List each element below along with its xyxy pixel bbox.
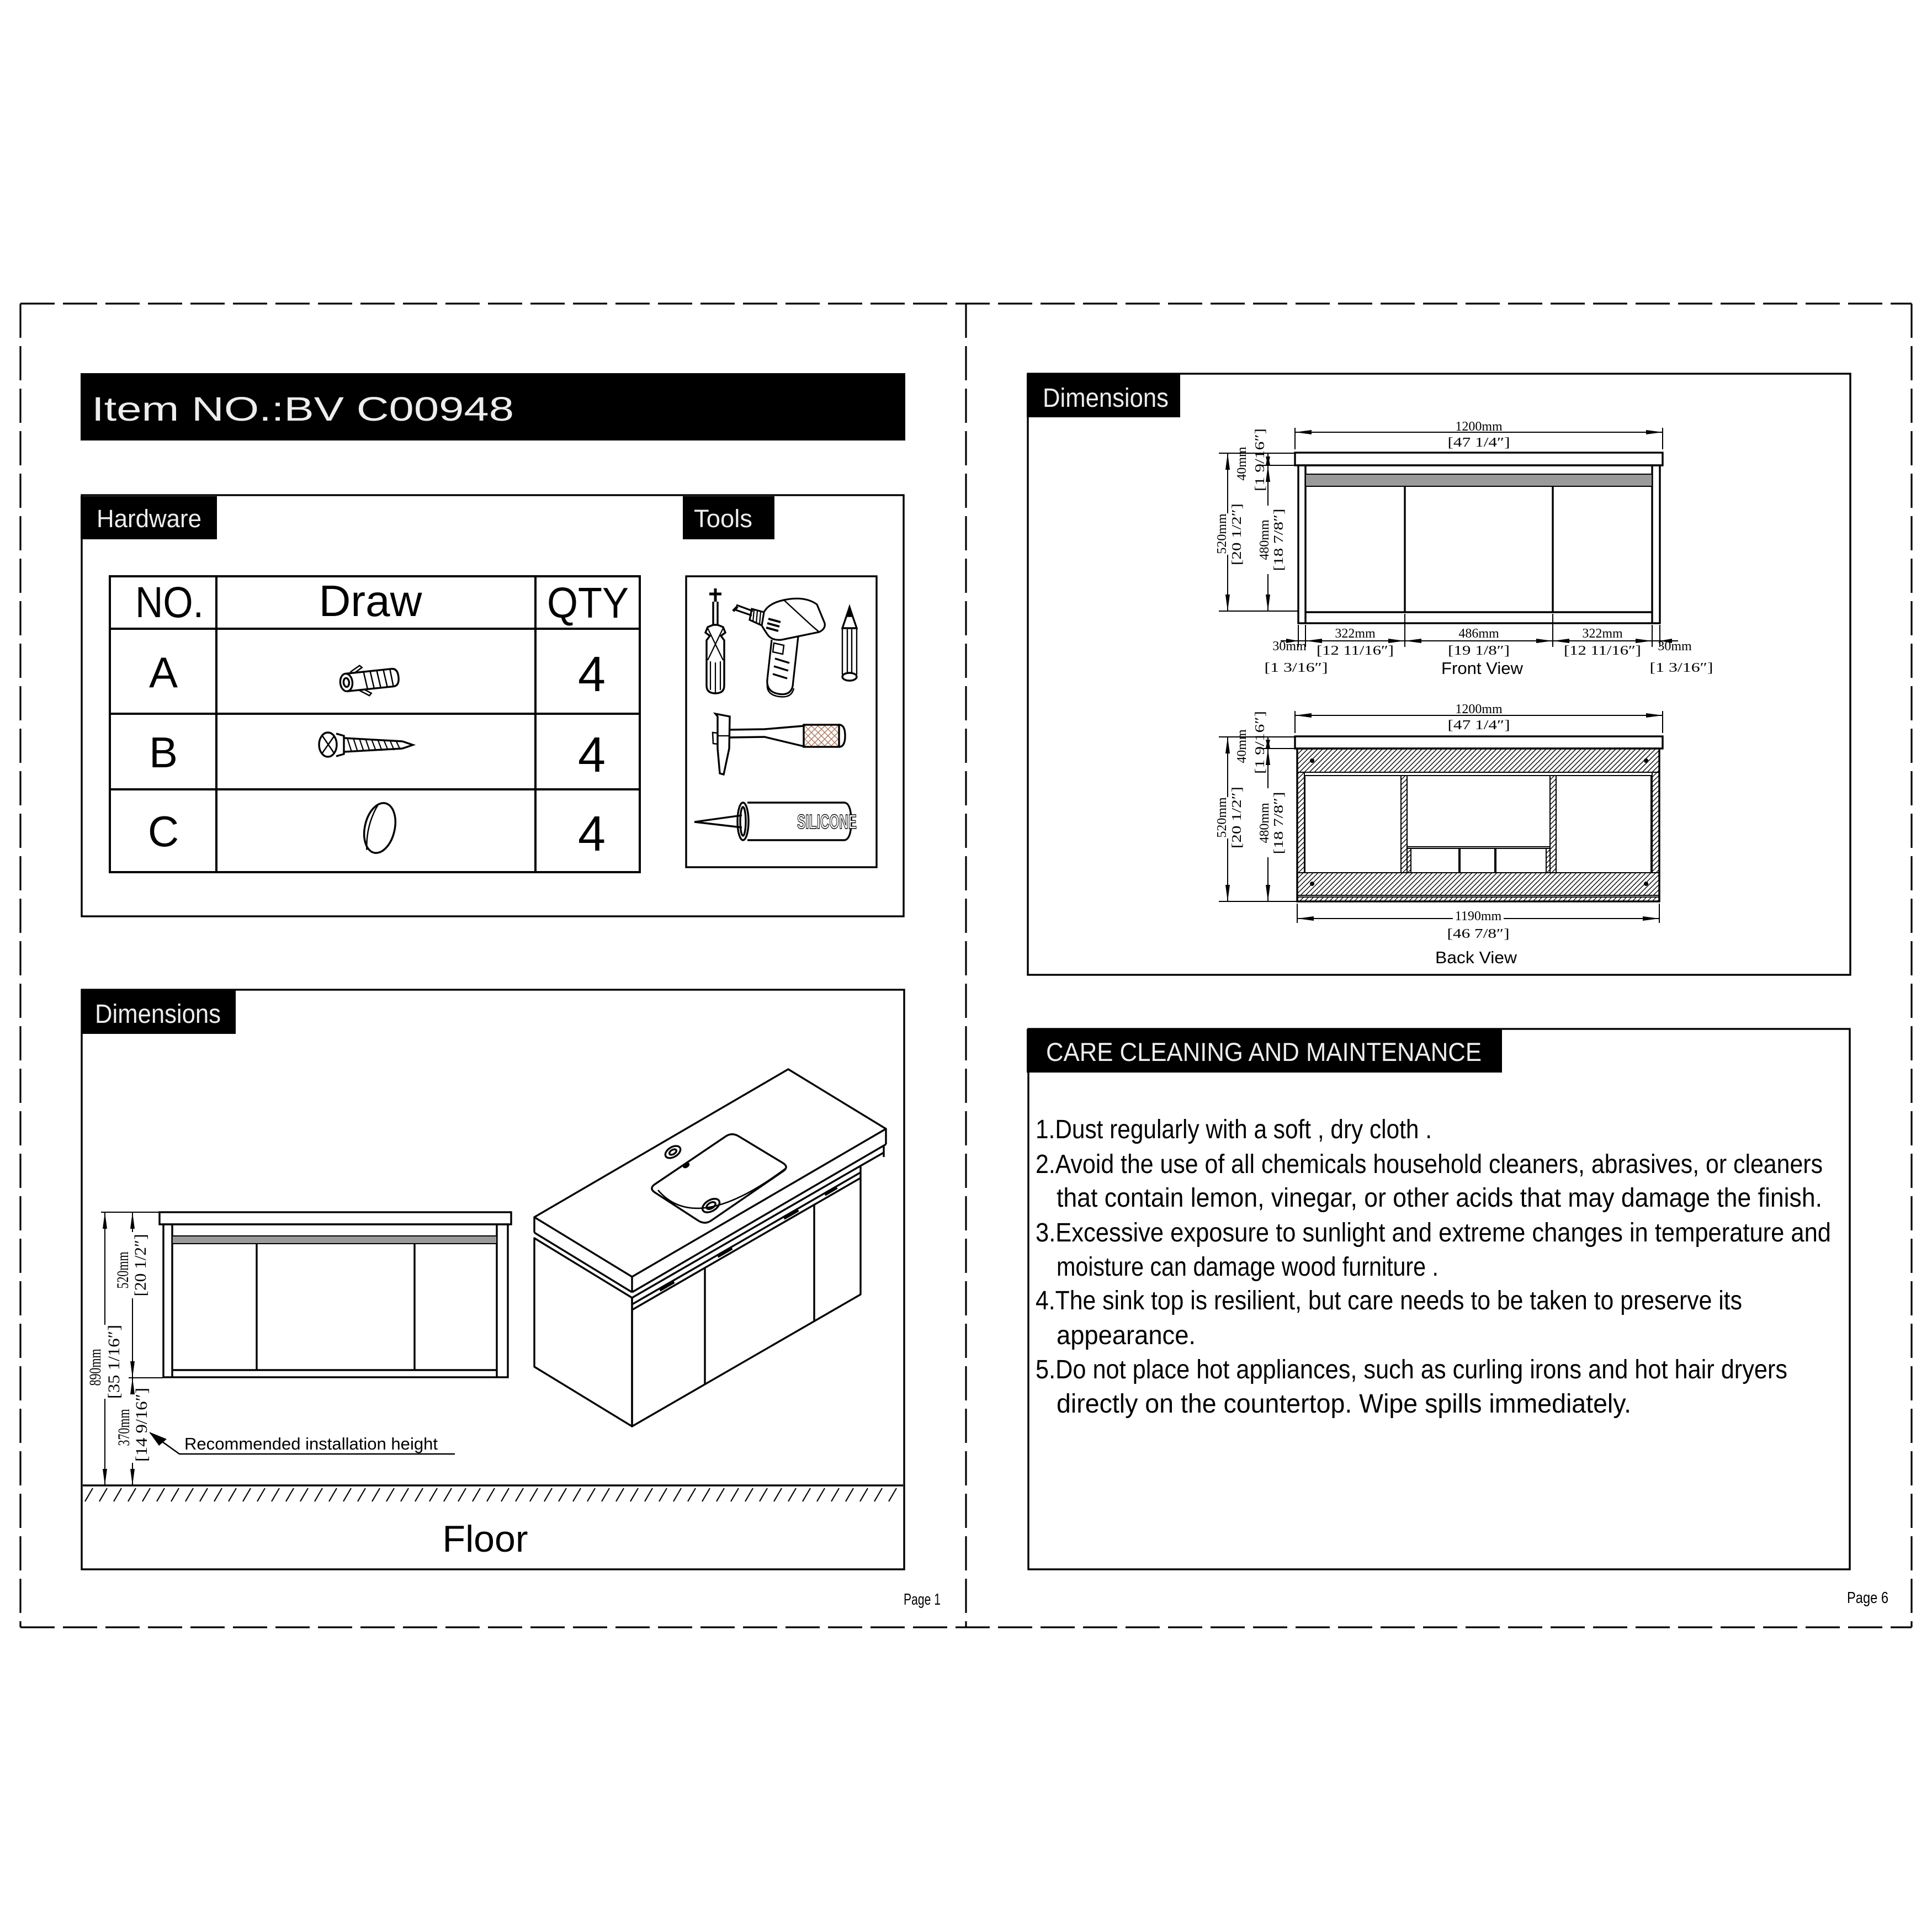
svg-text:4: 4: [578, 728, 606, 783]
svg-text:30mm: 30mm: [1658, 639, 1692, 654]
svg-text:NO.: NO.: [135, 577, 204, 627]
svg-text:Page 1: Page 1: [904, 1591, 941, 1609]
svg-text:322mm: 322mm: [1335, 627, 1376, 641]
svg-text:B: B: [149, 728, 178, 777]
svg-text:1190mm: 1190mm: [1455, 909, 1502, 923]
svg-text:[1 9/16″]: [1 9/16″]: [1253, 428, 1267, 491]
svg-text:Floor: Floor: [443, 1518, 528, 1560]
svg-text:5.Do not place hot appliances,: 5.Do not place hot appliances, such as c…: [1036, 1355, 1787, 1384]
svg-text:Draw: Draw: [319, 576, 422, 625]
svg-text:moisture can damage wood furni: moisture can damage wood furniture .: [1057, 1252, 1439, 1282]
svg-text:[20 1/2″]: [20 1/2″]: [1230, 787, 1244, 848]
svg-text:[47 1/4″]: [47 1/4″]: [1448, 436, 1510, 450]
svg-text:40mm: 40mm: [1235, 729, 1249, 763]
svg-text:520mm: 520mm: [1215, 797, 1229, 838]
svg-text:[1 3/16″]: [1 3/16″]: [1650, 661, 1713, 675]
svg-text:that contain lemon, vinegar, o: that contain lemon, vinegar, or other ac…: [1057, 1183, 1822, 1213]
svg-text:Front View: Front View: [1441, 659, 1524, 678]
svg-text:[12 11/16″]: [12 11/16″]: [1564, 644, 1641, 658]
svg-text:Recommended installation heigh: Recommended installation height: [184, 1434, 438, 1453]
svg-text:Page 6: Page 6: [1847, 1589, 1888, 1607]
svg-text:[35 1/16″]: [35 1/16″]: [105, 1325, 123, 1399]
svg-text:[14 9/16″]: [14 9/16″]: [132, 1388, 151, 1462]
svg-text:1200mm: 1200mm: [1455, 420, 1503, 434]
svg-text:Dimensions: Dimensions: [95, 1000, 221, 1029]
svg-text:Dimensions: Dimensions: [1043, 384, 1169, 413]
svg-text:[20 1/2″]: [20 1/2″]: [1230, 503, 1244, 565]
svg-text:appearance.: appearance.: [1057, 1321, 1196, 1350]
svg-text:[47 1/4″]: [47 1/4″]: [1448, 718, 1510, 733]
svg-text:Tools: Tools: [694, 505, 752, 533]
svg-text:QTY: QTY: [547, 578, 629, 627]
svg-text:[19 1/8″]: [19 1/8″]: [1448, 644, 1510, 658]
svg-text:520mm: 520mm: [114, 1252, 132, 1289]
svg-text:directly on the countertop. Wi: directly on the countertop. Wipe spills …: [1057, 1389, 1631, 1419]
svg-text:CARE CLEANING AND MAINTENANCE: CARE CLEANING AND MAINTENANCE: [1046, 1037, 1482, 1066]
svg-text:SILICONE: SILICONE: [797, 810, 857, 833]
svg-text:Back View: Back View: [1435, 948, 1517, 967]
svg-text:[18 7/8″]: [18 7/8″]: [1272, 509, 1286, 571]
svg-text:30mm: 30mm: [1272, 639, 1307, 654]
svg-text:[1 9/16″]: [1 9/16″]: [1253, 711, 1267, 774]
svg-text:[1 3/16″]: [1 3/16″]: [1265, 661, 1328, 675]
svg-text:40mm: 40mm: [1235, 447, 1249, 481]
svg-text:C: C: [148, 807, 179, 856]
svg-text:1.Dust regularly with a soft ,: 1.Dust regularly with a soft , dry cloth…: [1036, 1115, 1432, 1144]
svg-text:4: 4: [578, 647, 606, 702]
svg-text:[18 7/8″]: [18 7/8″]: [1272, 792, 1286, 854]
svg-text:322mm: 322mm: [1582, 627, 1623, 641]
svg-text:4.The sink top is resilient, b: 4.The sink top is resilient, but care ne…: [1036, 1286, 1742, 1315]
svg-text:[46 7/8″]: [46 7/8″]: [1447, 927, 1510, 941]
svg-text:Item NO.:BV C00948: Item NO.:BV C00948: [92, 390, 514, 428]
svg-text:890mm: 890mm: [86, 1349, 104, 1386]
svg-text:480mm: 480mm: [1257, 803, 1272, 843]
svg-text:370mm: 370mm: [115, 1409, 133, 1446]
svg-text:480mm: 480mm: [1257, 519, 1272, 560]
svg-text:1200mm: 1200mm: [1455, 702, 1503, 716]
svg-text:Hardware: Hardware: [97, 505, 201, 533]
svg-text:[20 1/2″]: [20 1/2″]: [131, 1234, 150, 1297]
svg-text:486mm: 486mm: [1458, 627, 1499, 641]
svg-text:A: A: [149, 648, 178, 697]
svg-text:[12 11/16″]: [12 11/16″]: [1317, 644, 1394, 658]
svg-text:4: 4: [578, 806, 606, 862]
svg-text:3.Excessive exposure to sunlig: 3.Excessive exposure to sunlight and ext…: [1036, 1218, 1831, 1248]
svg-text:2.Avoid the use of all chemica: 2.Avoid the use of all chemicals househo…: [1036, 1150, 1823, 1179]
svg-text:520mm: 520mm: [1215, 513, 1229, 554]
